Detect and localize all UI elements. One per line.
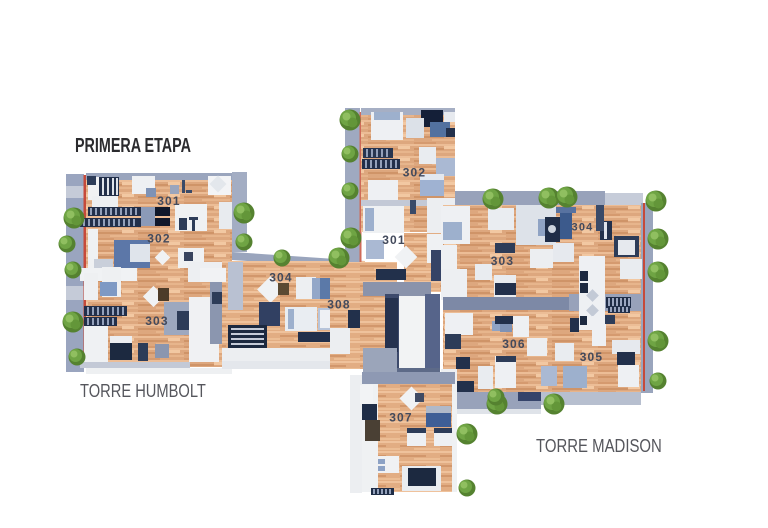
svg-text:302: 302 [403,166,427,180]
svg-text:TORRE HUMBOLT: TORRE HUMBOLT [80,380,206,401]
svg-text:PRIMERA ETAPA: PRIMERA ETAPA [75,134,191,157]
svg-text:303: 303 [491,254,515,268]
svg-text:305: 305 [580,350,604,364]
svg-text:303: 303 [145,314,169,328]
svg-text:307: 307 [389,411,413,425]
svg-text:301: 301 [157,194,181,208]
svg-text:304: 304 [269,271,293,285]
svg-text:304: 304 [572,222,594,234]
svg-text:302: 302 [147,232,171,246]
svg-text:308: 308 [327,298,351,312]
svg-text:TORRE MADISON: TORRE MADISON [536,435,662,456]
svg-text:306: 306 [502,337,526,351]
svg-text:301: 301 [382,233,406,247]
